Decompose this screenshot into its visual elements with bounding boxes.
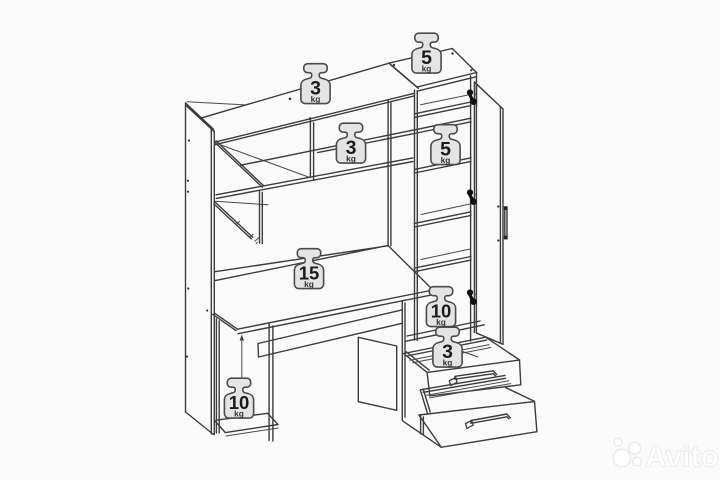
svg-text:kg: kg xyxy=(304,279,314,289)
svg-text:kg: kg xyxy=(422,64,432,74)
svg-text:kg: kg xyxy=(346,154,356,164)
svg-text:kg: kg xyxy=(311,94,321,104)
svg-text:kg: kg xyxy=(443,358,453,368)
svg-text:kg: kg xyxy=(436,317,446,327)
svg-text:kg: kg xyxy=(441,155,451,165)
svg-text:kg: kg xyxy=(234,409,244,419)
svg-text:Avito: Avito xyxy=(645,441,719,474)
